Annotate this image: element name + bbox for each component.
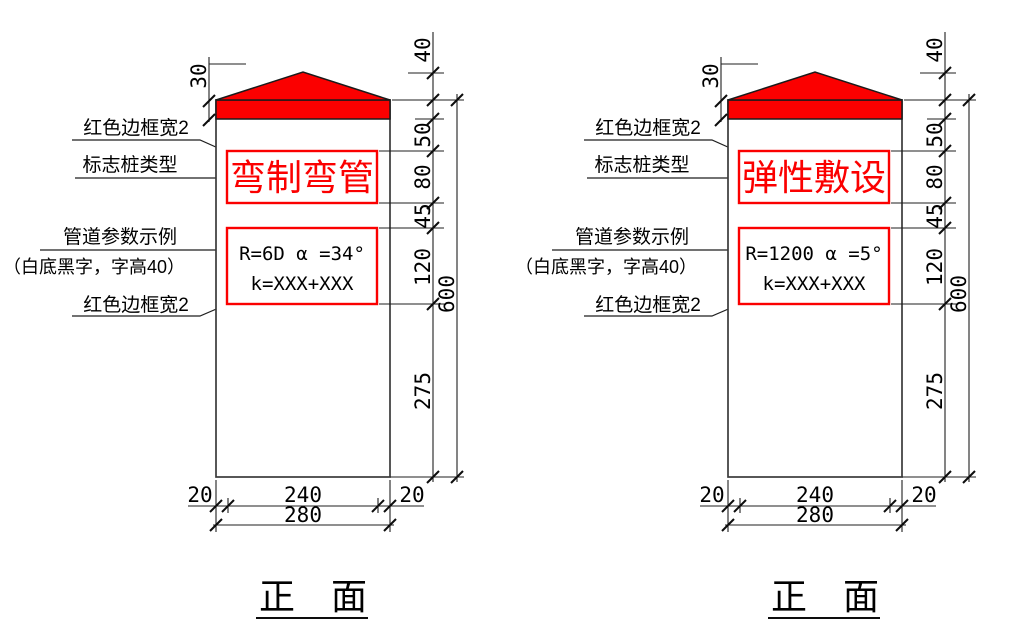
view-title: 正 面	[771, 576, 879, 617]
dim-45: 45	[411, 203, 435, 228]
callout-red-border-bottom: 红色边框宽2	[595, 294, 701, 316]
dim-120: 120	[411, 248, 435, 286]
post-param-line2: k=XXX+XXX	[763, 273, 867, 295]
dim-600: 600	[435, 275, 459, 313]
dim-280: 280	[796, 503, 834, 527]
dim-right-20: 20	[399, 483, 424, 507]
dim-45: 45	[923, 203, 947, 228]
post-param-line1: R=1200 α =5°	[745, 243, 882, 265]
technical-drawing: 红色边框宽2 标志桩类型 管道参数示例 （白底黑字，字高40） 红色边框宽2 弯…	[0, 0, 1011, 638]
dim-80: 80	[923, 164, 947, 189]
dim-left-20: 20	[187, 483, 212, 507]
callout-type-label: 标志桩类型	[82, 154, 177, 176]
dim-120: 120	[923, 248, 947, 286]
callout-param-label: 管道参数示例	[575, 226, 689, 248]
drawing-canvas: 红色边框宽2 标志桩类型 管道参数示例 （白底黑字，字高40） 红色边框宽2 弯…	[0, 0, 1011, 638]
callout-red-border-top: 红色边框宽2	[595, 117, 701, 139]
dim-50: 50	[923, 122, 947, 147]
dim-275: 275	[923, 372, 947, 410]
dim-600: 600	[947, 275, 971, 313]
view-title: 正 面	[259, 576, 367, 617]
post-type-text: 弯制弯管	[230, 157, 374, 198]
dim-band-30: 30	[699, 63, 723, 88]
callout-type-label: 标志桩类型	[594, 154, 689, 176]
post-param-line2: k=XXX+XXX	[251, 273, 355, 295]
post-cap-triangle	[216, 72, 390, 100]
dim-cap-40: 40	[411, 37, 435, 62]
dim-band-30: 30	[187, 63, 211, 88]
dim-left-20: 20	[699, 483, 724, 507]
dim-80: 80	[411, 164, 435, 189]
dim-right-20: 20	[911, 483, 936, 507]
dim-280: 280	[284, 503, 322, 527]
callout-param-note: （白底黑字，字高40）	[515, 257, 697, 277]
callout-param-note: （白底黑字，字高40）	[3, 257, 185, 277]
callout-red-border-top: 红色边框宽2	[83, 117, 189, 139]
callout-red-border-bottom: 红色边框宽2	[83, 294, 189, 316]
post-param-line1: R=6D α =34°	[239, 243, 365, 265]
dim-275: 275	[411, 372, 435, 410]
post-red-band	[216, 100, 390, 119]
dim-50: 50	[411, 122, 435, 147]
post-type-text: 弹性敷设	[742, 157, 886, 198]
callout-param-label: 管道参数示例	[63, 226, 177, 248]
dim-cap-40: 40	[923, 37, 947, 62]
